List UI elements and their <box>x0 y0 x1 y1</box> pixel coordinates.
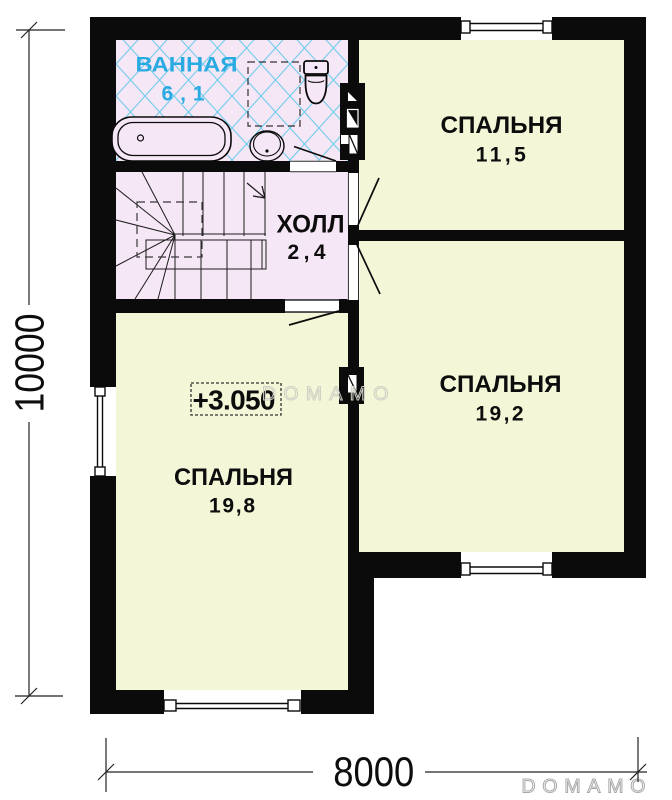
svg-text:ВАННАЯ: ВАННАЯ <box>136 54 238 77</box>
svg-text:6,1: 6,1 <box>162 83 205 106</box>
svg-text:11,5: 11,5 <box>476 144 526 167</box>
svg-text:2,4: 2,4 <box>288 241 326 264</box>
svg-text:DOMAMO: DOMAMO <box>262 383 396 405</box>
svg-text:19,8: 19,8 <box>209 495 255 518</box>
svg-text:СПАЛЬНЯ: СПАЛЬНЯ <box>440 371 562 398</box>
svg-text:DOMAMO: DOMAMO <box>522 776 653 798</box>
svg-text:СПАЛЬНЯ: СПАЛЬНЯ <box>174 464 293 491</box>
svg-text:8000: 8000 <box>333 748 414 795</box>
svg-text:19,2: 19,2 <box>476 403 524 426</box>
svg-text:10000: 10000 <box>7 314 53 413</box>
svg-text:СПАЛЬНЯ: СПАЛЬНЯ <box>441 112 563 139</box>
svg-text:ХОЛЛ: ХОЛЛ <box>277 211 345 239</box>
